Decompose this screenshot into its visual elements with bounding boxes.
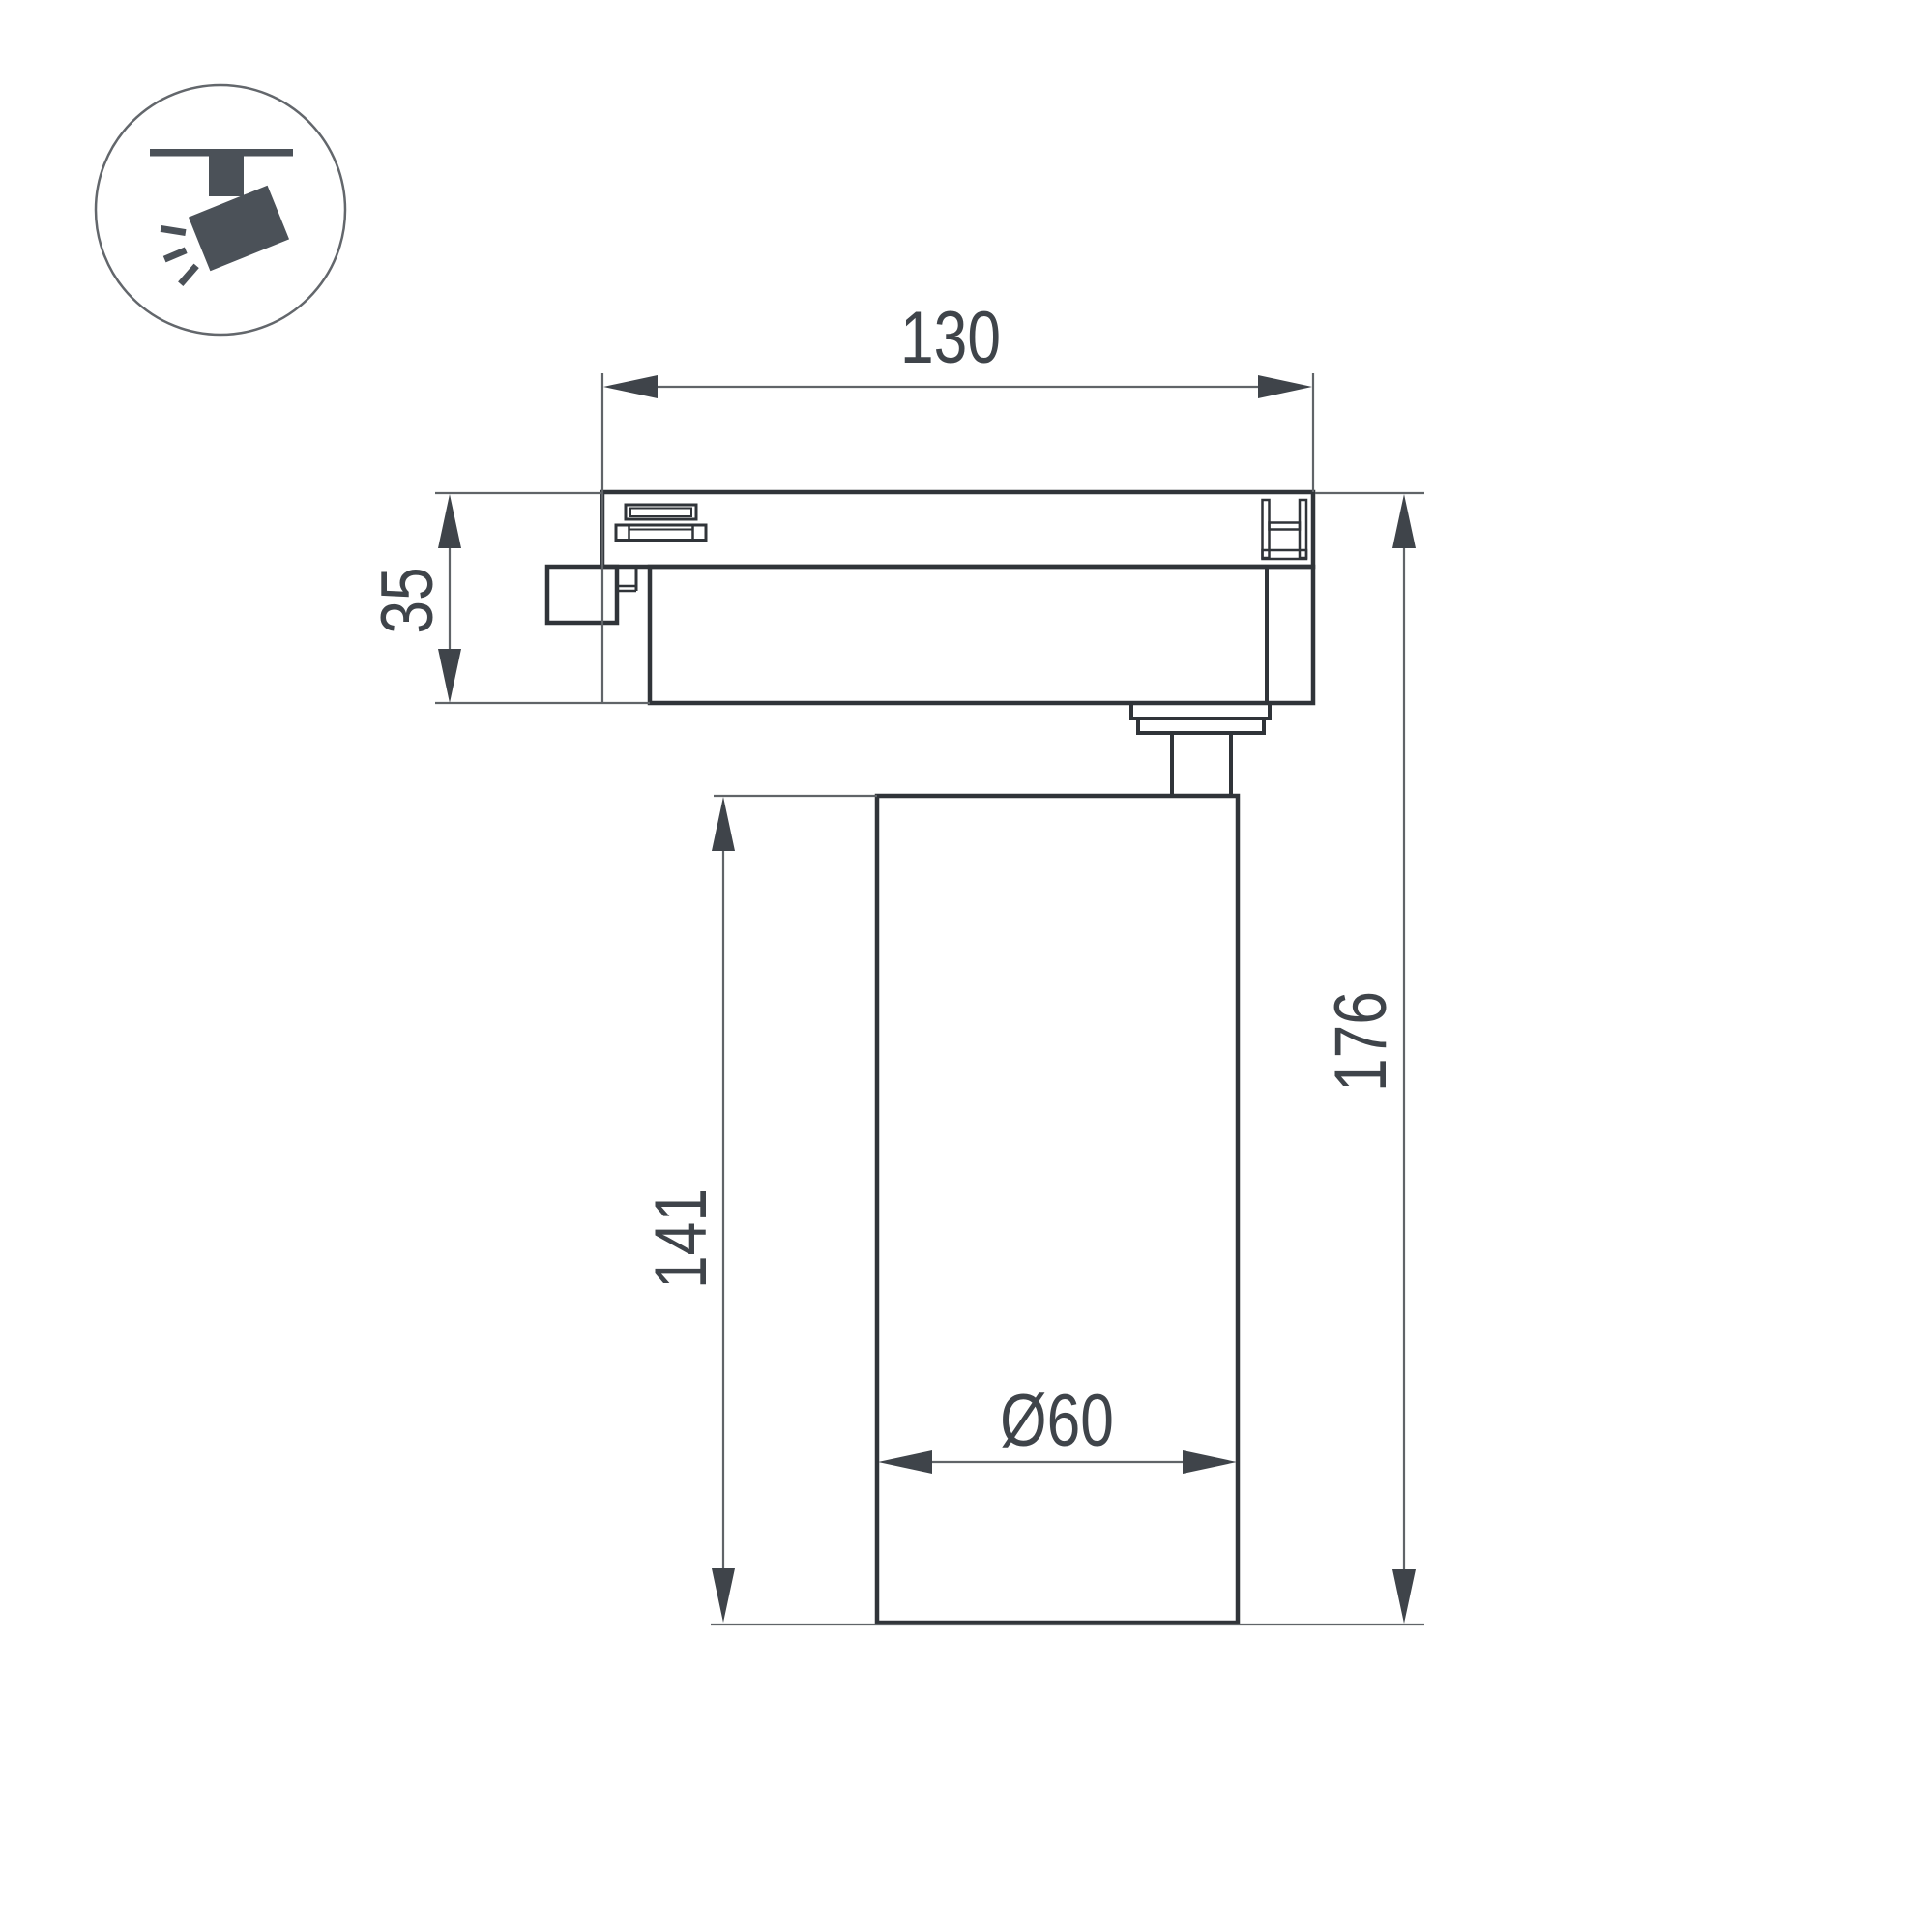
arrow-up (1392, 494, 1416, 548)
dim-label-adapter-height: 35 (366, 567, 448, 633)
drawing-page: 130 35 141 176 Ø60 (0, 0, 1932, 1932)
neck-step-1 (1131, 703, 1270, 718)
arrow-left (603, 375, 658, 398)
dim-label-track-width: 130 (900, 296, 1001, 378)
lamp-body (877, 796, 1238, 1623)
h-clip-crossbar (1270, 523, 1301, 530)
dim-label-body-height: 141 (639, 1188, 721, 1289)
dimension-arrows (438, 375, 1416, 1624)
arrow-down (1392, 1569, 1416, 1624)
icon-stem (209, 155, 244, 196)
arrow-up (438, 494, 461, 548)
neck-step-2 (1138, 718, 1264, 733)
neck-stem (1172, 733, 1231, 796)
arrow-up (712, 797, 735, 851)
arrow-right (1183, 1450, 1237, 1474)
technical-drawing: 130 35 141 176 Ø60 (0, 0, 1932, 1932)
track-spotlight-icon (96, 85, 345, 335)
dimension-lines (435, 373, 1424, 1625)
dim-label-diameter: Ø60 (1000, 1379, 1114, 1461)
contact-clip-upper-inner (630, 509, 691, 517)
dim-label-total-height: 176 (1319, 991, 1401, 1092)
arrow-right (1258, 375, 1312, 398)
dimension-labels: 130 35 141 176 Ø60 (366, 296, 1401, 1461)
arrow-left (878, 1450, 932, 1474)
adapter-lower-section (650, 567, 1313, 703)
adapter-latch-box (547, 567, 617, 623)
adapter-top-section (602, 492, 1313, 567)
arrow-down (712, 1568, 735, 1623)
arrow-down (438, 649, 461, 703)
